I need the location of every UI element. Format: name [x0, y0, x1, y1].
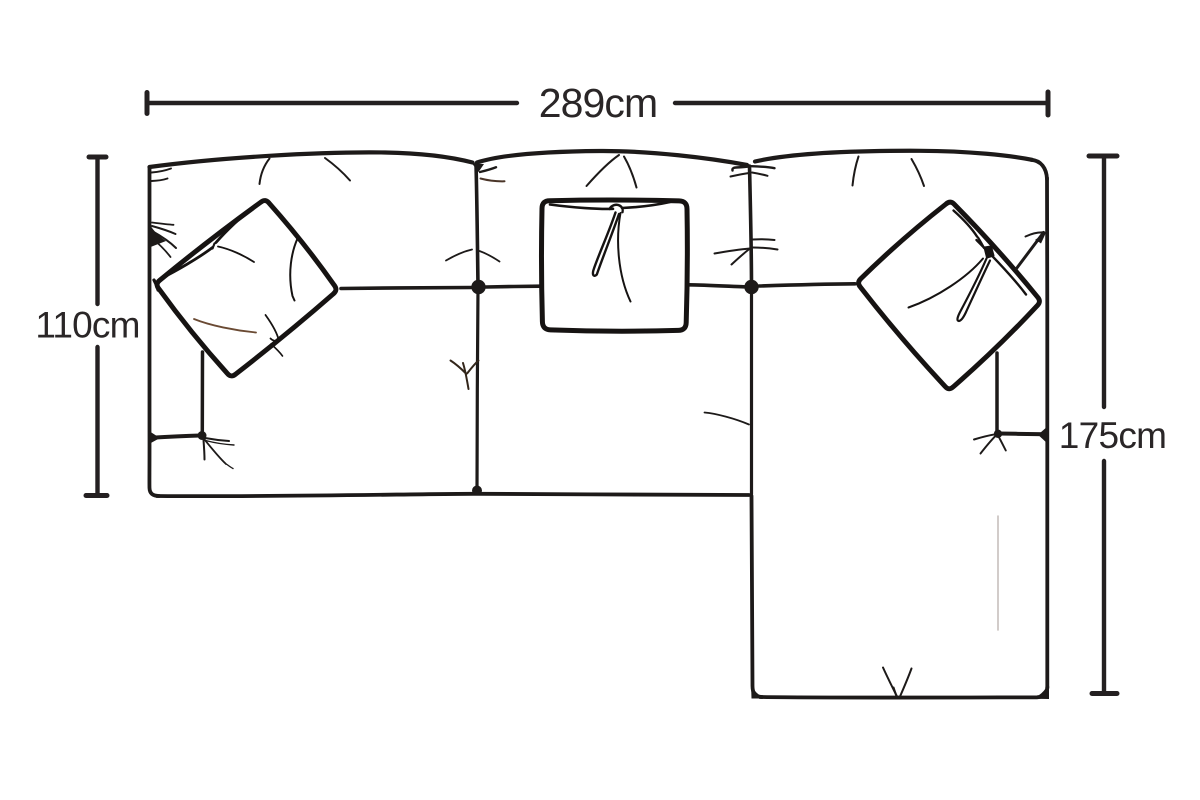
- svg-text:175cm: 175cm: [1059, 415, 1167, 456]
- svg-text:289cm: 289cm: [539, 80, 658, 126]
- svg-text:110cm: 110cm: [35, 305, 139, 346]
